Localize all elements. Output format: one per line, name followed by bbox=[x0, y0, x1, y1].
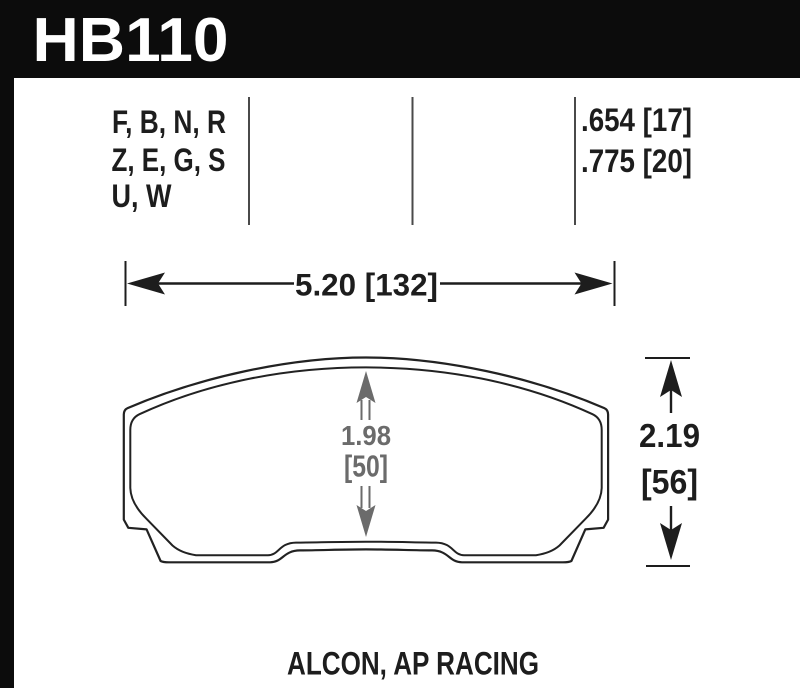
svg-text:[50]: [50] bbox=[344, 449, 388, 484]
svg-text:5.20 [132]: 5.20 [132] bbox=[295, 267, 438, 303]
svg-text:2.19: 2.19 bbox=[639, 418, 700, 455]
svg-text:F, B, N, R: F, B, N, R bbox=[112, 104, 226, 140]
svg-text:U, W: U, W bbox=[112, 178, 173, 214]
svg-text:HB110: HB110 bbox=[33, 6, 229, 75]
svg-text:ALCON, AP RACING: ALCON, AP RACING bbox=[287, 646, 539, 682]
svg-text:.654 [17]: .654 [17] bbox=[581, 102, 692, 138]
svg-text:Z, E, G, S: Z, E, G, S bbox=[112, 142, 226, 178]
svg-text:1.98: 1.98 bbox=[341, 420, 391, 451]
svg-text:[56]: [56] bbox=[641, 464, 698, 502]
svg-text:.775 [20]: .775 [20] bbox=[581, 143, 692, 179]
